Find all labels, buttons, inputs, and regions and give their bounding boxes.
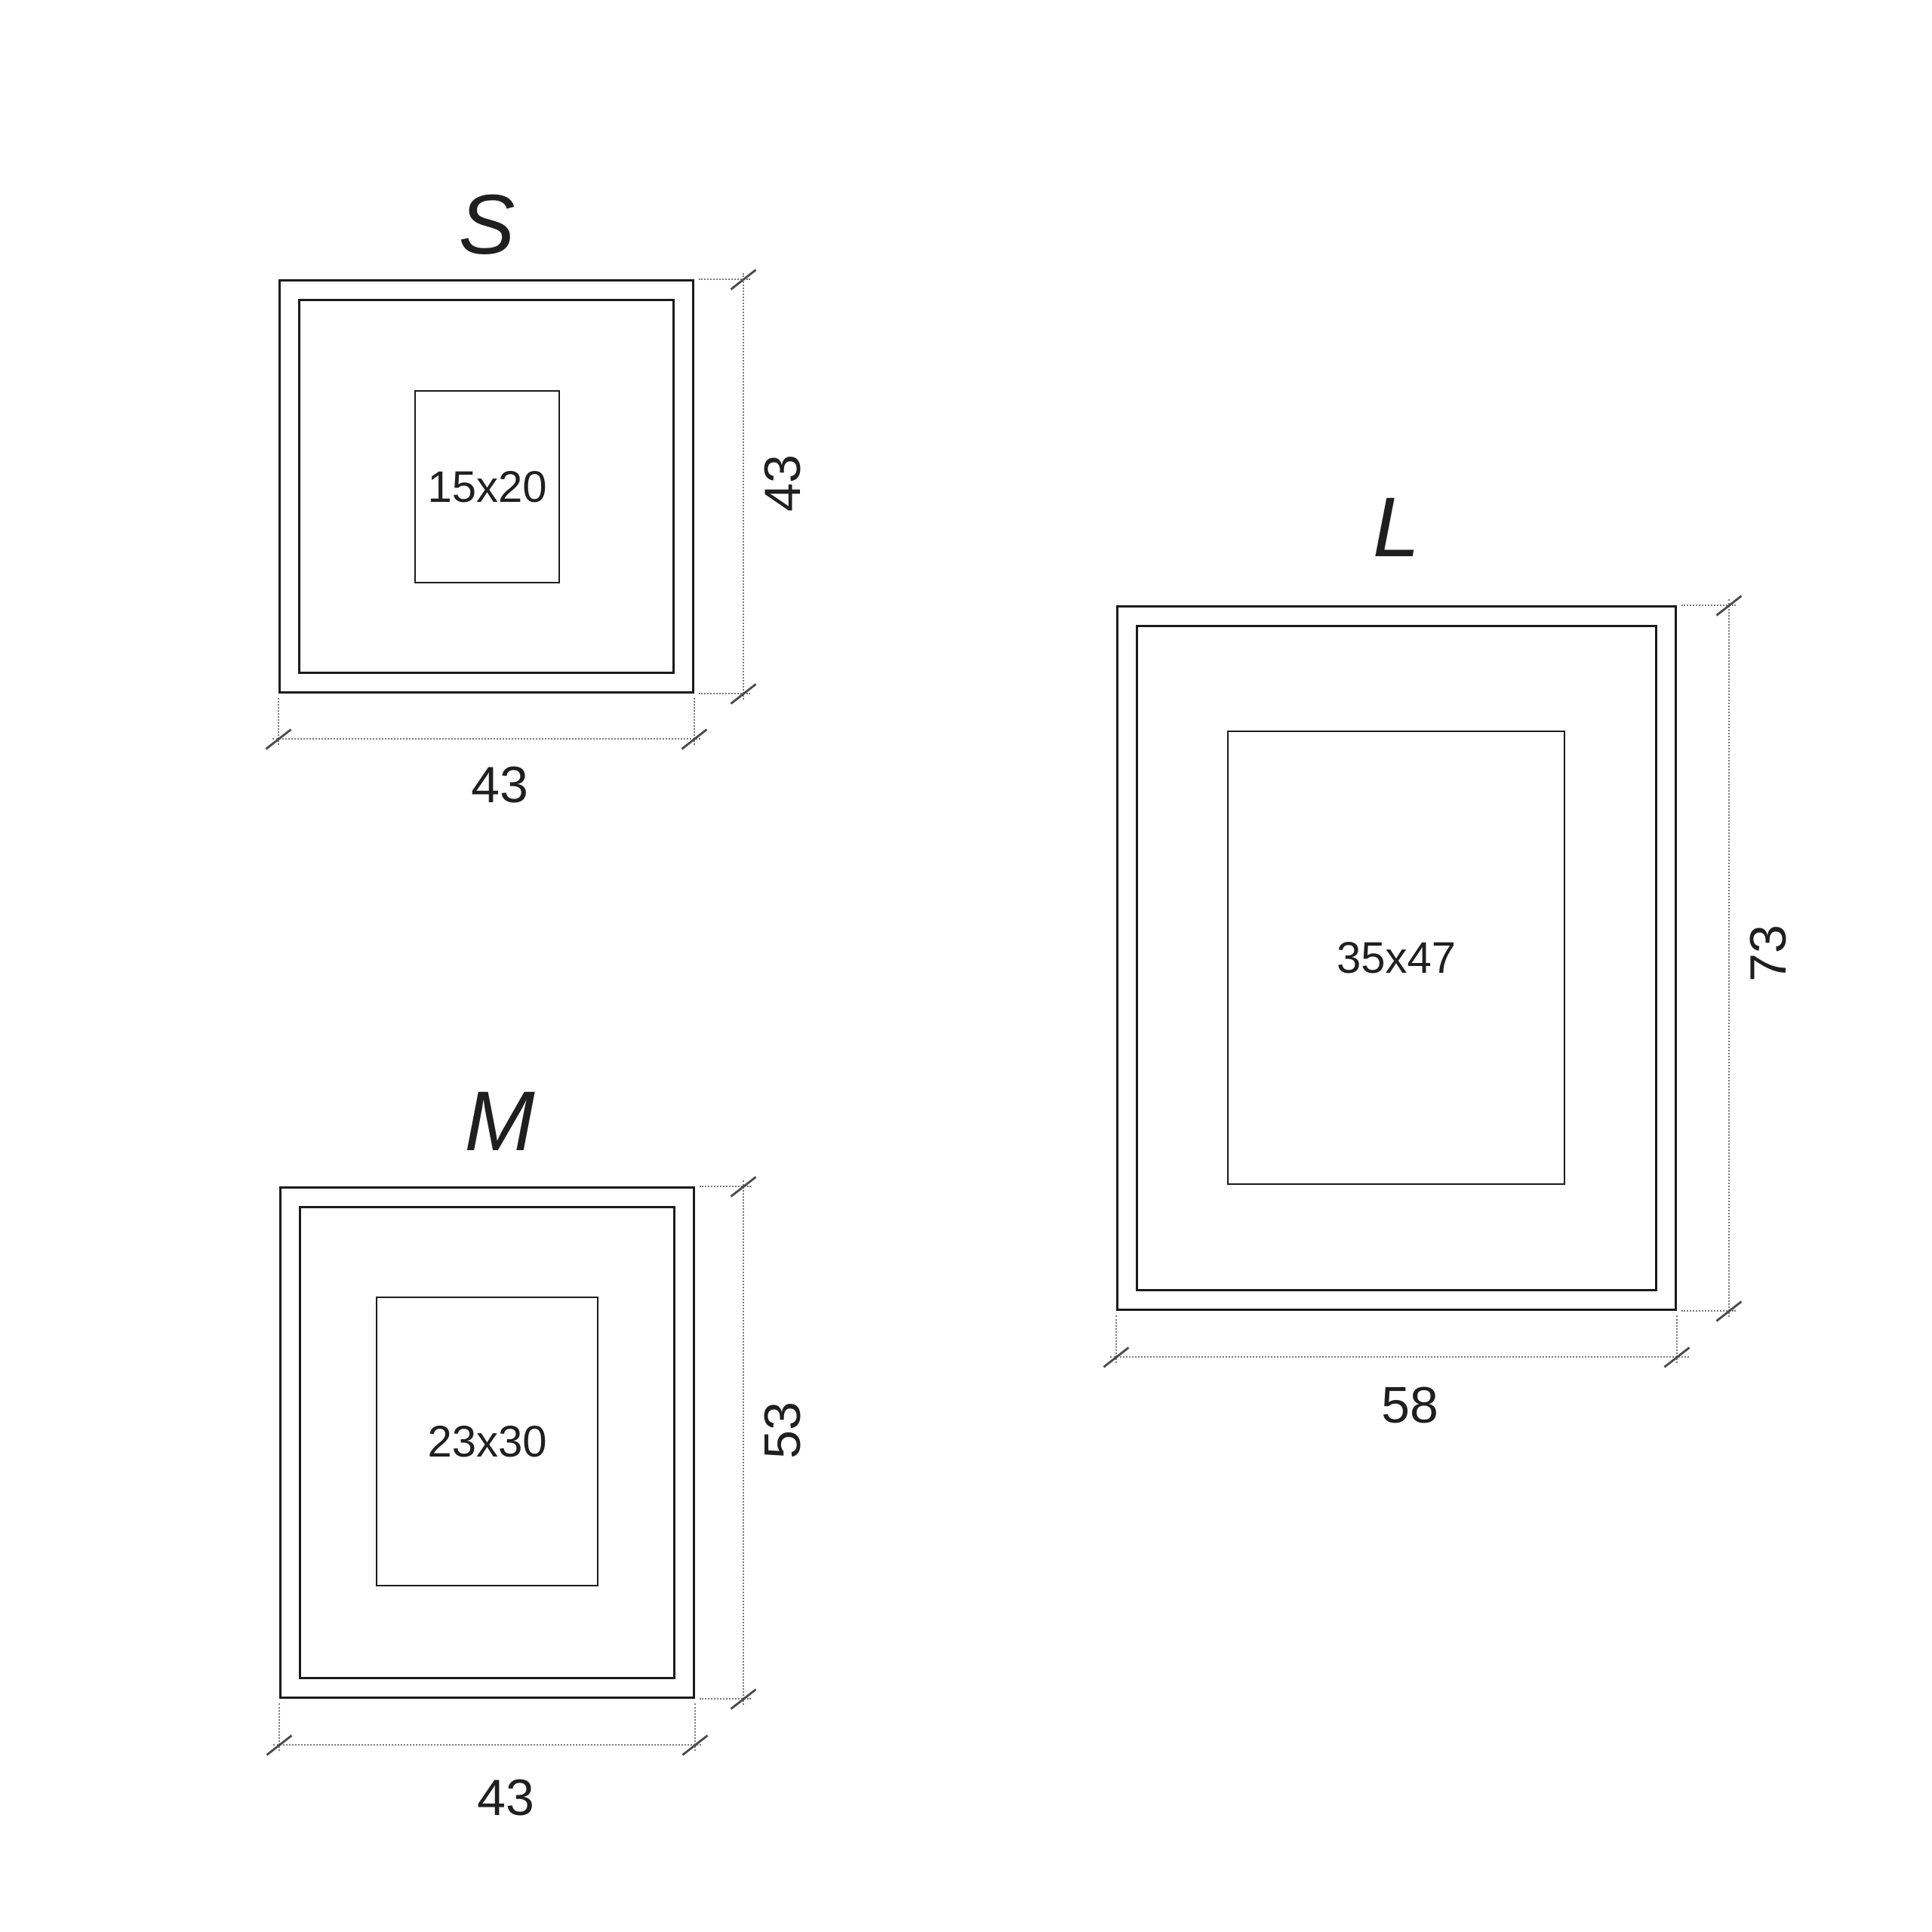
- frame-s-height-dimension-label: 43: [745, 400, 820, 566]
- frame-m-width-dimension-label: 43: [423, 1760, 589, 1835]
- frame-l-width-dimension-label: 58: [1327, 1367, 1493, 1443]
- frame-m-opening-size-label: 23x30: [427, 1417, 546, 1467]
- frame-m-height-dimension-line: [743, 1180, 744, 1705]
- frame-m-width-dimension-line: [273, 1744, 701, 1746]
- frame-size-diagram: S 15x20 43 43 M 23x30 53 43 L 35x47 73: [0, 0, 1932, 1932]
- frame-m-opening-rect: 23x30: [376, 1297, 598, 1586]
- frame-l-height-dimension-line: [1728, 599, 1730, 1317]
- frame-s-size-label: S: [404, 168, 570, 281]
- frame-m-size-label: M: [417, 1064, 583, 1177]
- frame-l-height-dimension-label: 73: [1730, 870, 1806, 1036]
- frame-s-height-dimension-line: [743, 273, 744, 700]
- frame-s-opening-rect: 15x20: [414, 390, 560, 583]
- frame-m-height-dimension-label: 53: [745, 1347, 820, 1513]
- frame-l-width-dimension-line: [1110, 1356, 1689, 1358]
- frame-s-width-dimension-line: [272, 738, 700, 740]
- frame-s-width-dimension-label: 43: [417, 747, 583, 823]
- frame-l-opening-rect: 35x47: [1227, 731, 1565, 1185]
- frame-l-opening-size-label: 35x47: [1337, 933, 1456, 983]
- frame-l-size-label: L: [1313, 470, 1479, 583]
- frame-s-opening-size-label: 15x20: [427, 462, 546, 512]
